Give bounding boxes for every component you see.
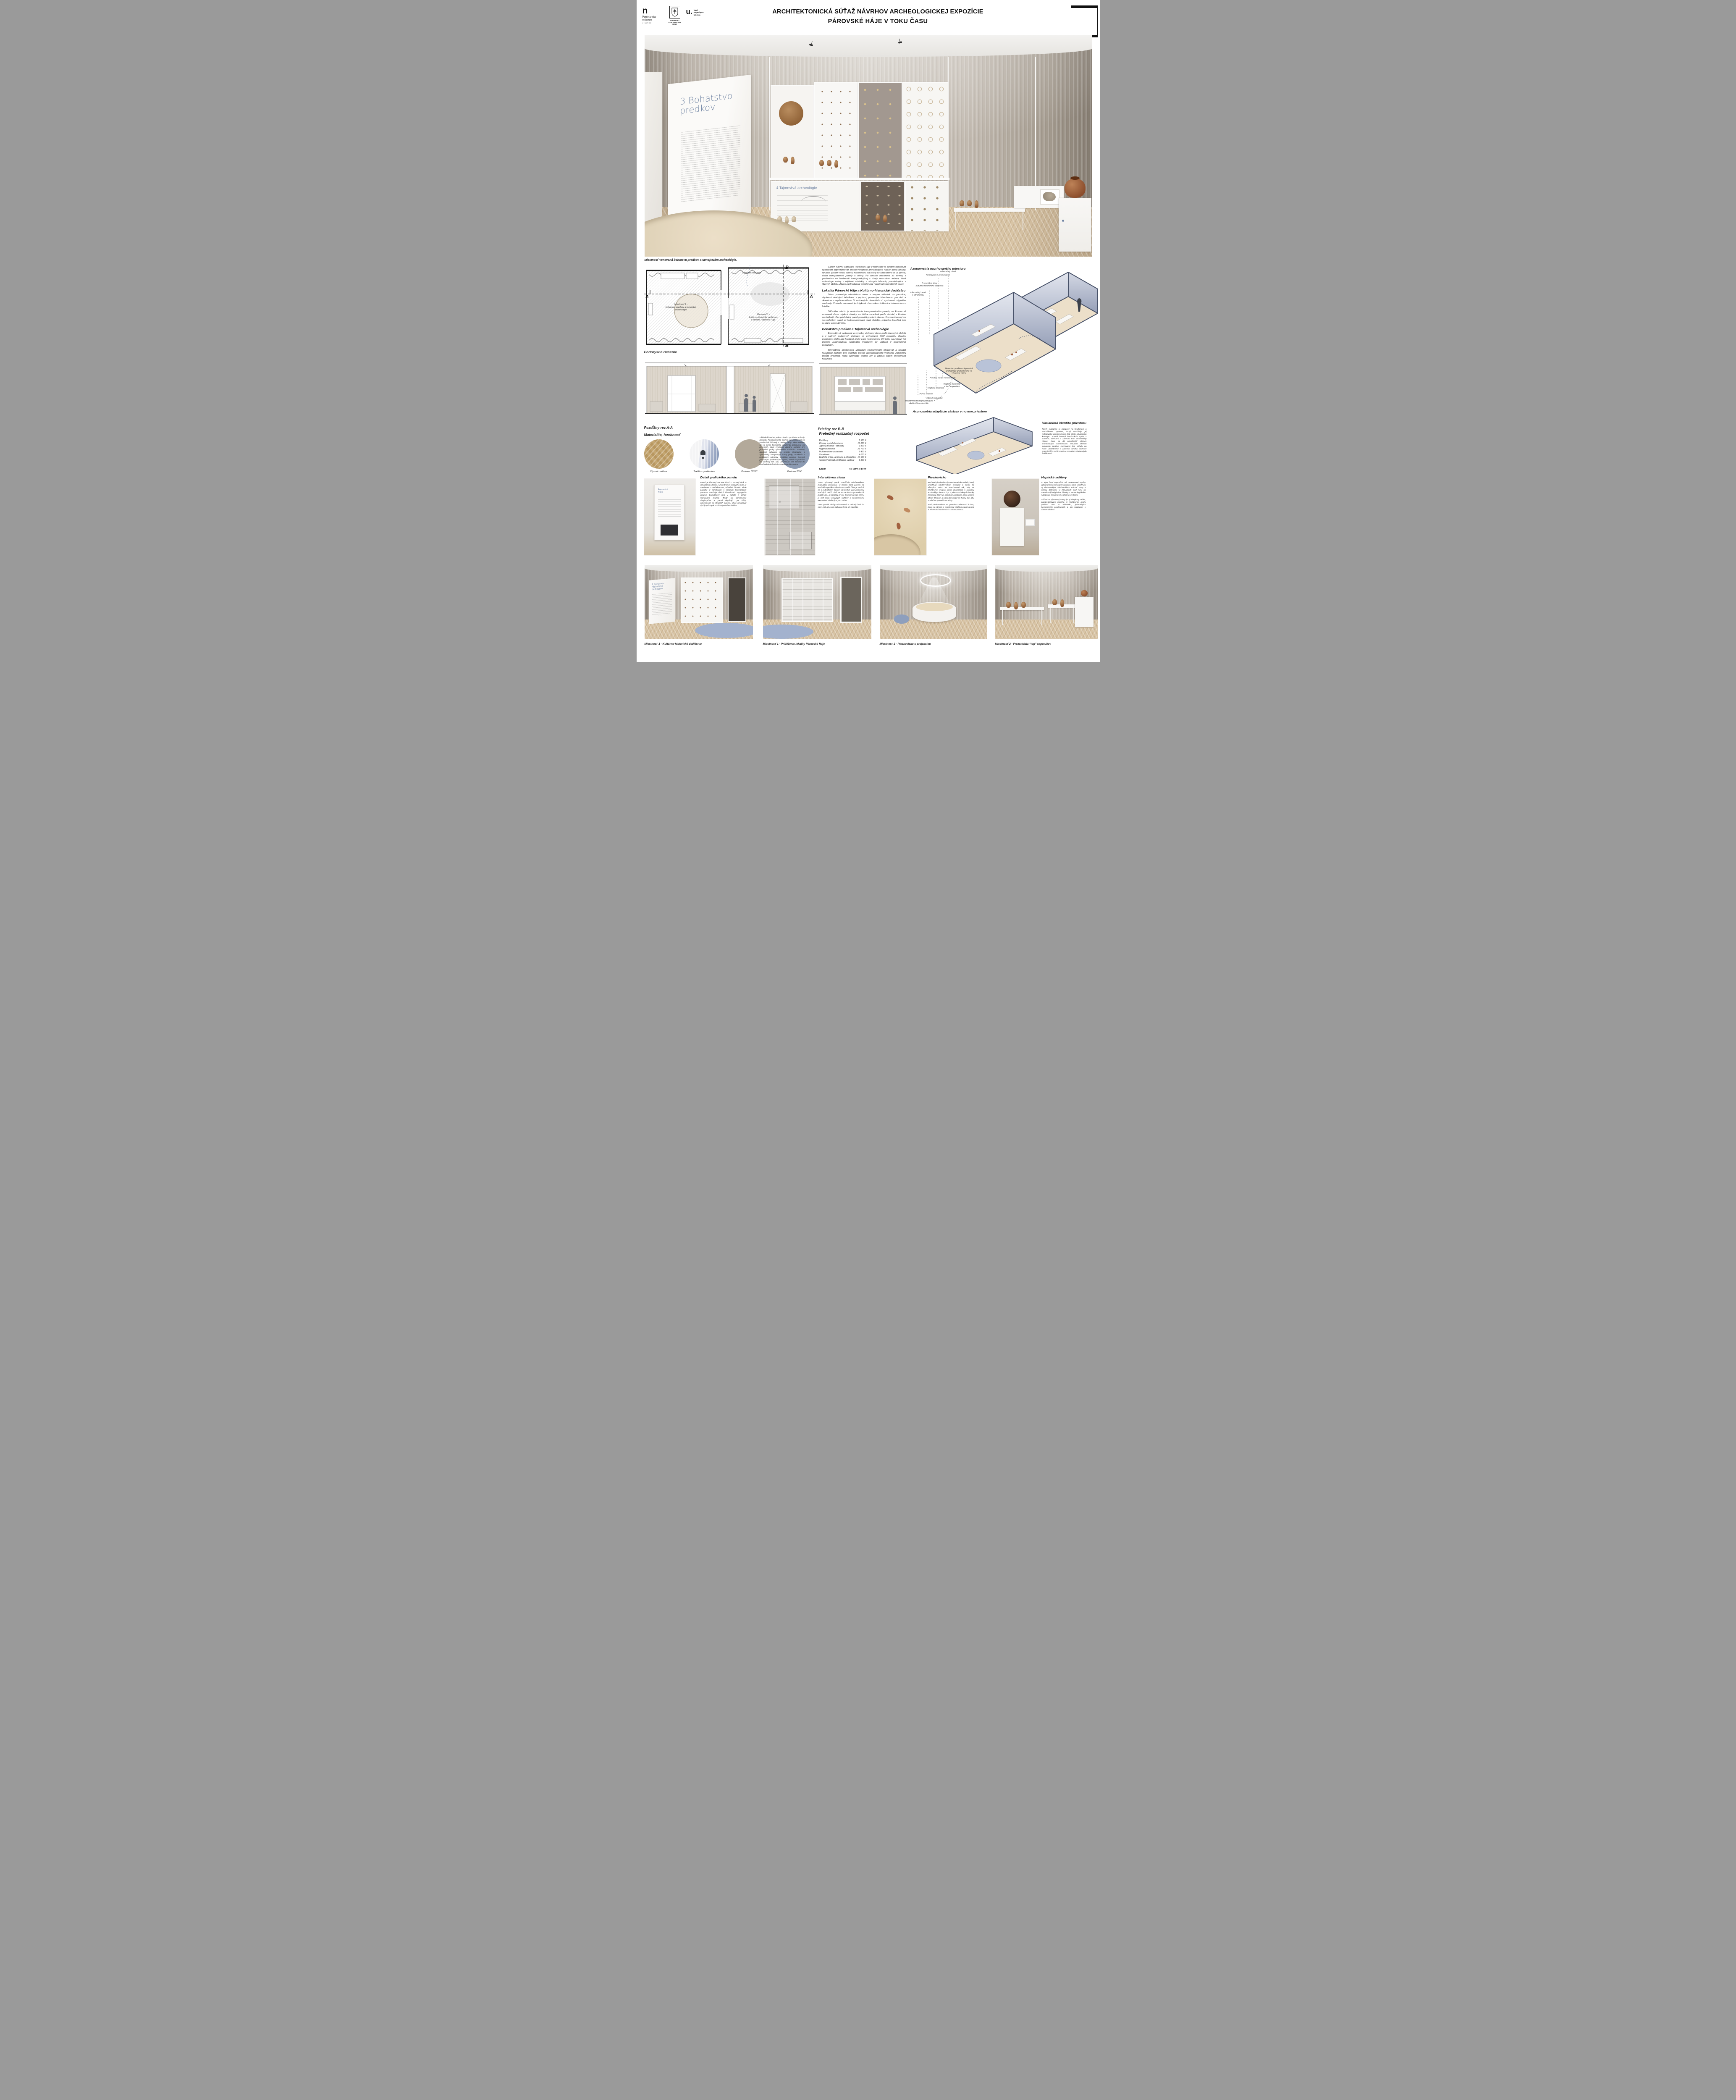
- pottery-row: [960, 200, 978, 208]
- panel-mock-title: Párovské Háje: [658, 488, 669, 493]
- kraj-name: NITRIANSKY SAMOSPRÁVNY KRAJ: [667, 20, 683, 26]
- detail-paragraph: Kruhové pieskovisko je navrhnuté ako sol…: [928, 482, 974, 502]
- budget-item: Autorský dohľad a inštalácia výstavy: [819, 459, 855, 462]
- detail-heading: Haptické solitéry: [1041, 475, 1086, 479]
- poster-title-line2: PÁROVSKÉ HÁJE V TOKU ČASU: [731, 18, 1025, 25]
- render-room1-interactive-wall: [763, 565, 871, 639]
- budget-heading: Prebežný realizačný rozpočet: [819, 431, 869, 436]
- showcase-panel-taupe: [858, 82, 902, 178]
- poster-title: ARCHITEKTONICKÁ SÚŤAŽ NÁVRHOV ARCHEOLOGI…: [731, 8, 1025, 25]
- pot-icon: [792, 216, 796, 222]
- parquet-floor: [880, 619, 987, 639]
- pottery-shard-icon: [886, 494, 894, 501]
- budget-item: Závesy s príslušenstvom: [819, 442, 843, 445]
- budget-row: Podhľady5 500 €: [819, 439, 866, 442]
- showcase-panel-rings: [902, 82, 949, 180]
- swatch-label-3: Pantone 289C: [780, 470, 810, 473]
- budget-total-row: Spolu 66 000 € s DPH: [819, 468, 866, 470]
- swatch-gradient-textile: [690, 439, 719, 469]
- pouf: [894, 614, 909, 624]
- ceiling: [645, 35, 1092, 57]
- panel-4-title: 4 Tajomstvá archeológie: [776, 186, 817, 190]
- scaffold-post: [769, 57, 770, 210]
- axo-label-prechod: Prechod medzi miestnostami: [930, 377, 956, 380]
- showcase-panel-wooden-disc: [771, 85, 814, 178]
- pot-icon: [791, 157, 795, 164]
- side-panel: [645, 72, 662, 236]
- detail-heading: Pieskovisko: [928, 475, 974, 479]
- solitaire-cabinet: [1075, 597, 1094, 627]
- pottery-row: [819, 160, 838, 168]
- detail-heading: Interaktívna stena: [818, 475, 864, 479]
- pottery-shard-icon: [896, 522, 901, 530]
- budget-value: 5 400 €: [859, 451, 866, 454]
- pot-icon: [1006, 602, 1011, 608]
- budget-value: 3 800 €: [859, 459, 866, 462]
- showcase-panel-fragments: [860, 181, 905, 231]
- poster-title-line1: ARCHITEKTONICKÁ SÚŤAŽ NÁVRHOV ARCHEOLOGI…: [731, 8, 1025, 15]
- swatch-label-0: Vlysová podlaha: [644, 470, 674, 473]
- pot-icon: [827, 160, 831, 166]
- pot-icon: [819, 160, 824, 166]
- budget-value: 1 800 €: [859, 445, 866, 448]
- budget-row: Atypový mobiliár21 700 €: [819, 448, 866, 451]
- axo-label-prezentacia-temy: Prezentácia témy kultúrno-historického d…: [916, 282, 944, 287]
- budget-item: Osvetlenie: [819, 454, 830, 457]
- dark-doorway: [728, 577, 746, 622]
- pot-icon: [1014, 602, 1018, 609]
- render-caption-1: Miestnosť 1 - Priblíženie lokality Párov…: [763, 643, 825, 646]
- budget-row: Osvetlenie4 000 €: [819, 454, 866, 457]
- budget-item: Multimediálne zariadenia: [819, 451, 843, 454]
- logo-fond-na-podporu-umenia: u. fond na podporu umenia: [686, 8, 716, 16]
- detail-paragraph: Panel je členený na dve časti – textový …: [700, 482, 747, 507]
- budget-value: 13 200 €: [858, 442, 866, 445]
- info-card: [1025, 519, 1035, 526]
- table-leg: [1002, 610, 1003, 625]
- budget-value: 21 700 €: [858, 448, 866, 451]
- shelf-beam: [769, 178, 949, 180]
- detail-paragraph: Súčasťou výstavnej steny je aj dotykový …: [1041, 499, 1086, 512]
- fond-u-icon: u.: [686, 8, 692, 16]
- plan-room2-label: Miestnosť 2 - bohatstvo predkov a tamojs…: [666, 303, 696, 312]
- axo-label-pieskovisko: Pieskovisko s premietaním: [926, 274, 950, 277]
- panel-2-text-lines: [652, 593, 672, 616]
- panel-4-sketch-arc: [801, 196, 826, 209]
- pot-icon: [876, 215, 880, 220]
- interactive-wall: [781, 578, 833, 622]
- render-room2-top-exhibits: [995, 565, 1098, 639]
- pedestal: [1000, 508, 1024, 546]
- render-caption-3: Miestnosť 2 - Prezentácia “top” exponáto…: [995, 643, 1051, 646]
- pottery-row: [1006, 602, 1026, 609]
- panel-mock-text-lines: [658, 498, 681, 520]
- budget-row: Autorský dohľad a inštalácia výstavy3 80…: [819, 459, 866, 462]
- axo-label-hapticka-keramika: Haptická keramika: [928, 387, 944, 390]
- axo-label-puf: Puf na sedenie: [919, 393, 933, 396]
- pot-icon: [1060, 599, 1064, 607]
- section-bb-caption: Priečny rez B-B: [818, 427, 844, 431]
- pot-icon: [1052, 599, 1057, 605]
- projection-ring-icon: [920, 574, 951, 587]
- swatch-wood-floor: [644, 439, 674, 469]
- detail-text-graphic-panel: Detail grafického panelu Panel je členen…: [700, 475, 747, 509]
- crest-shield-icon: [671, 8, 678, 17]
- pot-icon: [960, 200, 964, 206]
- side-table-with-frame: [1014, 186, 1064, 208]
- longitudinal-section-drawing: [644, 358, 815, 425]
- entry-number-box: [1071, 5, 1098, 37]
- axonometry1-title: Axonometria navrhovaného priestoru: [910, 267, 966, 270]
- table-top: [954, 208, 1025, 212]
- dark-pot-icon: [1004, 491, 1020, 507]
- render-caption-0: Miestnosť 1 - Kultúrno-historické dedičs…: [645, 643, 702, 646]
- detail-image-interactive-wall: [765, 479, 815, 555]
- table-legs: [955, 212, 1023, 230]
- pot-icon: [783, 157, 788, 163]
- budget-row: Multimediálne zariadenia5 400 €: [819, 451, 866, 454]
- axonometry2-title: Axonometria adaptácie výstavy v novom pr…: [913, 409, 987, 413]
- hero-render-exhibition-room: 3 Bohatstvo predkov 4 Tajomstvá archeoló…: [645, 35, 1092, 257]
- section1-paragraph2: Súčasťou návrhu je umiestnenie transpare…: [822, 310, 906, 325]
- showcase-panel-stones: [905, 181, 949, 231]
- detail-paragraph: Tento výstavný prvok umožňuje návštevník…: [818, 482, 864, 502]
- detail-text-interactive-wall: Interaktívna stena Tento výstavný prvok …: [818, 475, 864, 511]
- render-caption-2: Miestnosť 2 - Pieskovisko s projekciou: [880, 643, 931, 646]
- panel-mock: Párovské Háje: [654, 485, 684, 540]
- section-marker-b-bottom: B: [785, 343, 789, 348]
- graphic-panel-2: 2 Kultúrno- Historické dedičstvo: [649, 578, 675, 624]
- muzeum-name: Ponitrianske múzeum: [642, 16, 666, 22]
- render-room2-sandbox-projection: [880, 565, 987, 639]
- pottery-shard-icon: [903, 507, 910, 513]
- budget-item: Podhľady: [819, 439, 829, 442]
- pot-icon: [834, 160, 838, 168]
- plan-room1-label: Miestnosť 1 - kultúrno-historické dedičs…: [749, 313, 777, 322]
- hero-caption: Miestnosť venovaná bohatsvu predkov a ta…: [645, 259, 737, 262]
- variable-identity-heading: Variabilná identita priestoru: [1042, 421, 1087, 425]
- detail-image-graphic-panel: Párovské Háje: [644, 479, 695, 555]
- section2-paragraph1: Exponáty sú vystavené vo vysokej vitríno…: [822, 332, 906, 347]
- section-marker-a-left: A: [645, 294, 649, 299]
- section-aa-caption: Pozdĺžny rez A-A: [644, 425, 673, 430]
- competition-poster: n Ponitrianske múzeum V NITRE NITRIANSKY…: [637, 0, 1100, 662]
- pottery-row: [783, 157, 795, 164]
- concept-text-column: Cieľom návrhu expozície Párovské Háje v …: [822, 266, 906, 363]
- axo-label-interaktivna-vitrina: Interaktívna vitrína prezentujúca lokali…: [904, 400, 933, 404]
- plan-entry-label: Vstup do expozície: [742, 272, 761, 274]
- budget-row: Typový mobiliár - taburety1 800 €: [819, 445, 866, 448]
- round-sandbox-table: [913, 602, 956, 622]
- pot-icon: [967, 200, 972, 206]
- materiality-paragraph: Základná farebná paleta návrhu vychádza …: [760, 437, 805, 466]
- budget-row: Závesy s príslušenstvom13 200 €: [819, 442, 866, 445]
- logo-ponitrianske-muzeum: n Ponitrianske múzeum V NITRE: [642, 7, 666, 24]
- axo-label-informacny-panel: Informačný panel: [940, 271, 956, 273]
- pot-icon: [883, 215, 887, 222]
- panel-mock-display: [661, 525, 678, 535]
- budget-total-label: Spolu: [819, 468, 826, 470]
- detail-text-haptic-solitaire: Haptické solitéry V tejto časti expozíci…: [1041, 475, 1086, 513]
- budget-item: Typový mobiliár - taburety: [819, 445, 844, 448]
- budget-row: Grafické práce, animácie a infografika10…: [819, 456, 866, 459]
- swatch-label-2: Pantone 7533C: [735, 470, 764, 473]
- budget-value: 10 600 €: [858, 456, 866, 459]
- axo-label-haptika-top: Haptická keramika s “top” exponátmi: [944, 383, 960, 388]
- budget-table: Podhľady5 500 € Závesy s príslušenstvom1…: [819, 439, 866, 462]
- detail-image-sandbox: [874, 479, 926, 555]
- floor-plan: A A B B Miestnosť 2 - bohatstvo predkov …: [644, 265, 815, 348]
- panel-3-title: 3 Bohatstvo predkov: [680, 91, 733, 115]
- budget-total-value: 66 000 € s DPH: [850, 468, 866, 470]
- detail-paragraph: Nad pieskoviskom sa premieta inštruktáž …: [928, 504, 974, 512]
- pot-icon: [1021, 602, 1026, 608]
- pottery-row: [1052, 599, 1064, 607]
- white-cabinet: [1059, 198, 1091, 252]
- panel-2-title: 2 Kultúrno- Historické dedičstvo: [652, 582, 664, 591]
- swatch-label-1: Textílie s gradientom: [690, 470, 719, 473]
- table-leg: [1041, 610, 1042, 625]
- large-clay-pot: [1065, 178, 1086, 198]
- budget-value: 5 500 €: [859, 439, 866, 442]
- sandbox-rim: [874, 534, 920, 555]
- render-room1-heritage: 2 Kultúrno- Historické dedičstvo: [645, 565, 753, 639]
- intro-paragraph: Cieľom návrhu expozície Párovské Háje v …: [822, 266, 906, 286]
- section-marker-a-right: A: [809, 294, 813, 299]
- floor-plan-caption: Pôdorysné riešenie: [644, 350, 677, 354]
- variable-identity-paragraph: Návrh expozície je založený na flexibiln…: [1042, 428, 1087, 455]
- framed-artwork: [1040, 189, 1059, 205]
- artifact-wall: [681, 577, 723, 623]
- coat-of-arms-icon: [669, 6, 680, 18]
- detail-paragraph: V tejto časti expozície sú umiestnené re…: [1041, 482, 1086, 497]
- muzeum-n-icon: n: [642, 7, 666, 15]
- detail-paragraph: Obe vysoké vitríny sú kotvené v zadnej č…: [818, 504, 864, 509]
- section1-heading: Lokalita Párovské Háje a Kultúrno-histor…: [822, 289, 906, 292]
- table-leg: [1073, 608, 1074, 623]
- logo-nitriansky-kraj: NITRIANSKY SAMOSPRÁVNY KRAJ: [667, 6, 683, 26]
- budget-item: Grafické práce, animácie a infografika: [819, 456, 856, 459]
- panel-3-text-lines: [681, 126, 740, 203]
- axonometry1-drawing: [909, 271, 1100, 407]
- graphic-panel-3: 3 Bohatstvo predkov: [668, 75, 751, 229]
- detail-heading: Detail grafického panelu: [700, 475, 747, 479]
- axo-label-vstup: Vstup do expozície: [926, 397, 943, 400]
- axo-label-panel-s-obrazovkou: Informačný panel s obrazovkou: [910, 291, 926, 296]
- fond-name: fond na podporu umenia: [694, 9, 704, 16]
- axonometry2-drawing: [913, 415, 1035, 476]
- doorway: [840, 577, 862, 623]
- table-leg: [1050, 608, 1051, 623]
- detail-text-sandbox: Pieskovisko Kruhové pieskovisko je navrh…: [928, 475, 974, 513]
- axo-label-bohatstvo-vitrina: Bohatstvo predkov a tajomstvá archeológi…: [945, 367, 973, 375]
- materiality-heading: Materialita, farebnosť: [644, 433, 681, 437]
- section-marker-b-top: B: [785, 265, 789, 270]
- pottery-row: [876, 215, 887, 222]
- budget-value: 4 000 €: [859, 454, 866, 457]
- exhibition-shelf-grid: 4 Tajomstvá archeológie: [771, 82, 948, 230]
- section2-heading: Bohatstvo predkov a Tajomstvá archeológi…: [822, 327, 906, 331]
- section1-paragraph1: Tému prezentuje interaktívna stena s map…: [822, 294, 906, 308]
- detail-image-haptic-solitaire: [992, 479, 1039, 555]
- muzeum-subtitle: V NITRE: [642, 22, 666, 24]
- pot-icon: [975, 200, 978, 208]
- budget-item: Atypový mobiliár: [819, 448, 835, 451]
- cross-section-drawing: [818, 358, 908, 427]
